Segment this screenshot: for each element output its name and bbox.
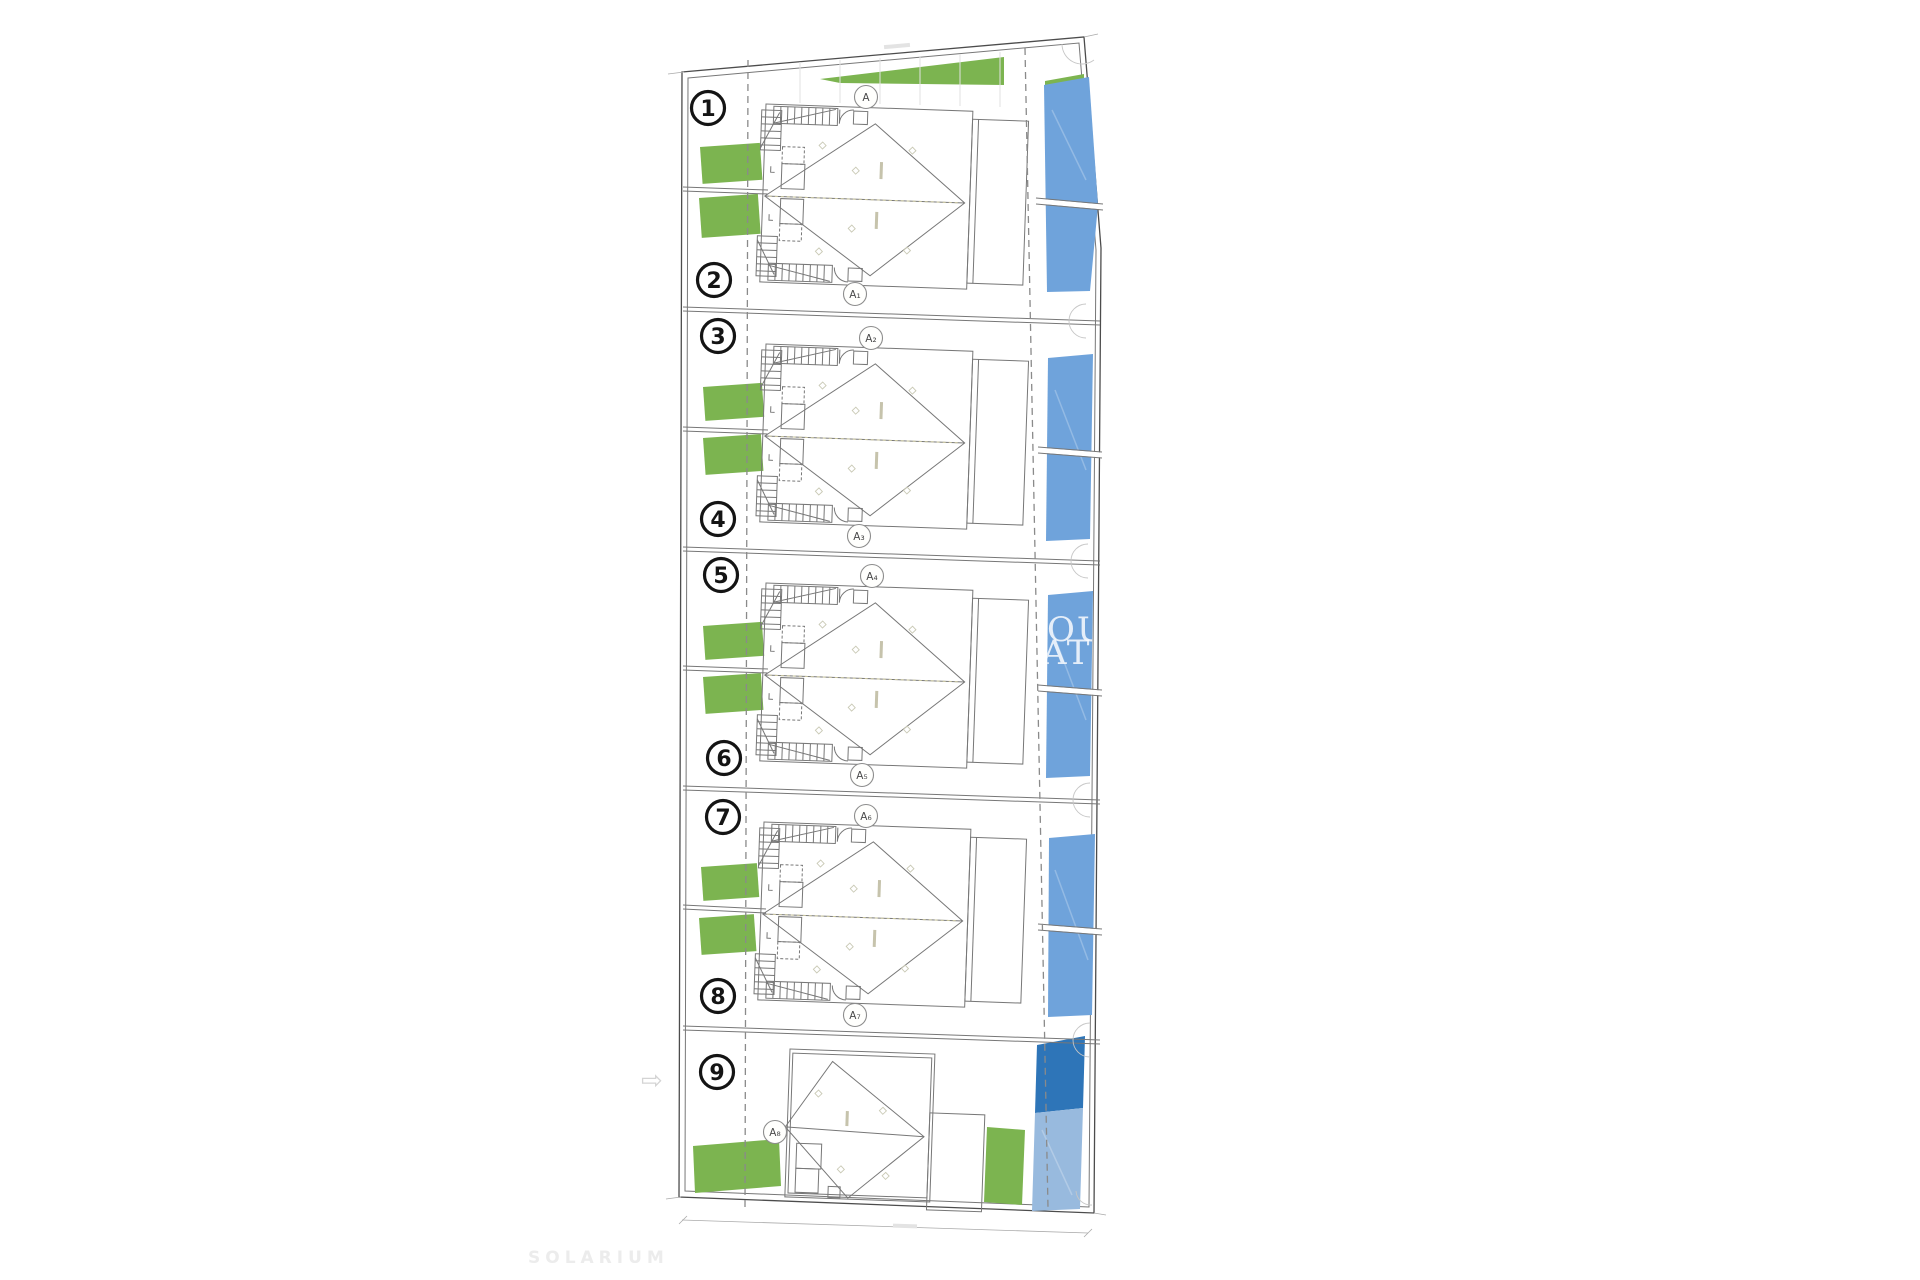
top-lawn-wedge	[820, 57, 1004, 85]
setback-line-right	[1025, 48, 1048, 1208]
garden-unit-4	[703, 434, 763, 475]
unit-number-7: 7	[707, 801, 740, 834]
pool-unit-9-shallow	[1032, 1108, 1083, 1211]
solarium-label: SOLARIUM	[528, 1248, 669, 1268]
pool-unit-9-deep	[1035, 1036, 1085, 1113]
svg-text:4: 4	[710, 508, 725, 533]
section-marker-a6: A₆	[855, 805, 878, 828]
building-units-7-8	[754, 822, 1027, 1009]
garden-unit-6	[703, 673, 763, 714]
svg-text:6: 6	[716, 747, 731, 772]
nav-arrow-icon[interactable]: ⇨	[641, 1066, 663, 1096]
unit-party-lines-right	[1036, 198, 1103, 935]
section-marker-a7: A₇	[844, 1004, 867, 1027]
svg-text:7: 7	[715, 806, 730, 831]
section-marker-a: A	[855, 86, 878, 109]
svg-text:A₅: A₅	[856, 770, 867, 782]
unit-number-6: 6	[708, 742, 741, 775]
svg-text:A₃: A₃	[853, 531, 864, 543]
unit-number-4: 4	[702, 503, 735, 536]
building-unit-9	[783, 1049, 987, 1212]
watermark-line-2: ATE	[1041, 633, 1118, 673]
unit-number-8: 8	[702, 980, 735, 1013]
svg-text:8: 8	[710, 985, 725, 1010]
garden-unit-5	[703, 622, 764, 660]
pool-units-1-2	[1044, 77, 1098, 292]
svg-text:A₁: A₁	[849, 289, 860, 301]
garden-unit-3	[703, 383, 764, 421]
building-units-5-6	[756, 583, 1029, 770]
building-units-3-4	[756, 344, 1029, 531]
garden-unit-1	[700, 143, 762, 184]
garden-unit-9-left	[693, 1139, 781, 1193]
unit-number-9: 9	[701, 1056, 734, 1089]
pool-units-3-4	[1046, 354, 1093, 541]
garden-unit-7	[701, 863, 759, 901]
svg-text:2: 2	[706, 269, 721, 294]
section-marker-a3: A₃	[848, 525, 871, 548]
svg-text:3: 3	[710, 325, 725, 350]
section-marker-a2: A₂	[860, 327, 883, 350]
section-marker-a1: A₁	[844, 283, 867, 306]
site-plan-canvas: OUI ATE	[0, 0, 1920, 1280]
garden-unit-2	[699, 194, 761, 238]
watermark: OUI ATE	[1041, 610, 1123, 673]
unit-number-3: 3	[702, 320, 735, 353]
unit-number-2: 2	[698, 264, 731, 297]
svg-text:9: 9	[709, 1061, 724, 1086]
unit-number-5: 5	[705, 559, 738, 592]
svg-text:A: A	[862, 92, 870, 104]
section-marker-a4: A₄	[861, 565, 884, 588]
section-marker-a5: A₅	[851, 764, 874, 787]
section-markers: A A₁ A₂ A₃ A₄ A₅ A₆ A₇ A₈	[764, 86, 884, 1144]
garden-unit-8	[699, 914, 756, 955]
svg-text:A₄: A₄	[866, 571, 877, 583]
svg-text:A₇: A₇	[849, 1010, 860, 1022]
unit-number-1: 1	[692, 92, 725, 125]
svg-text:1: 1	[700, 97, 715, 122]
svg-text:5: 5	[713, 564, 728, 589]
section-marker-a8: A₈	[764, 1121, 787, 1144]
garden-unit-9-right	[984, 1127, 1025, 1205]
svg-text:A₆: A₆	[860, 811, 871, 823]
svg-text:A₈: A₈	[769, 1127, 780, 1139]
building-units-1-2	[756, 104, 1029, 291]
svg-text:A₂: A₂	[865, 333, 876, 345]
site-plan: OUI ATE	[0, 0, 1920, 1280]
